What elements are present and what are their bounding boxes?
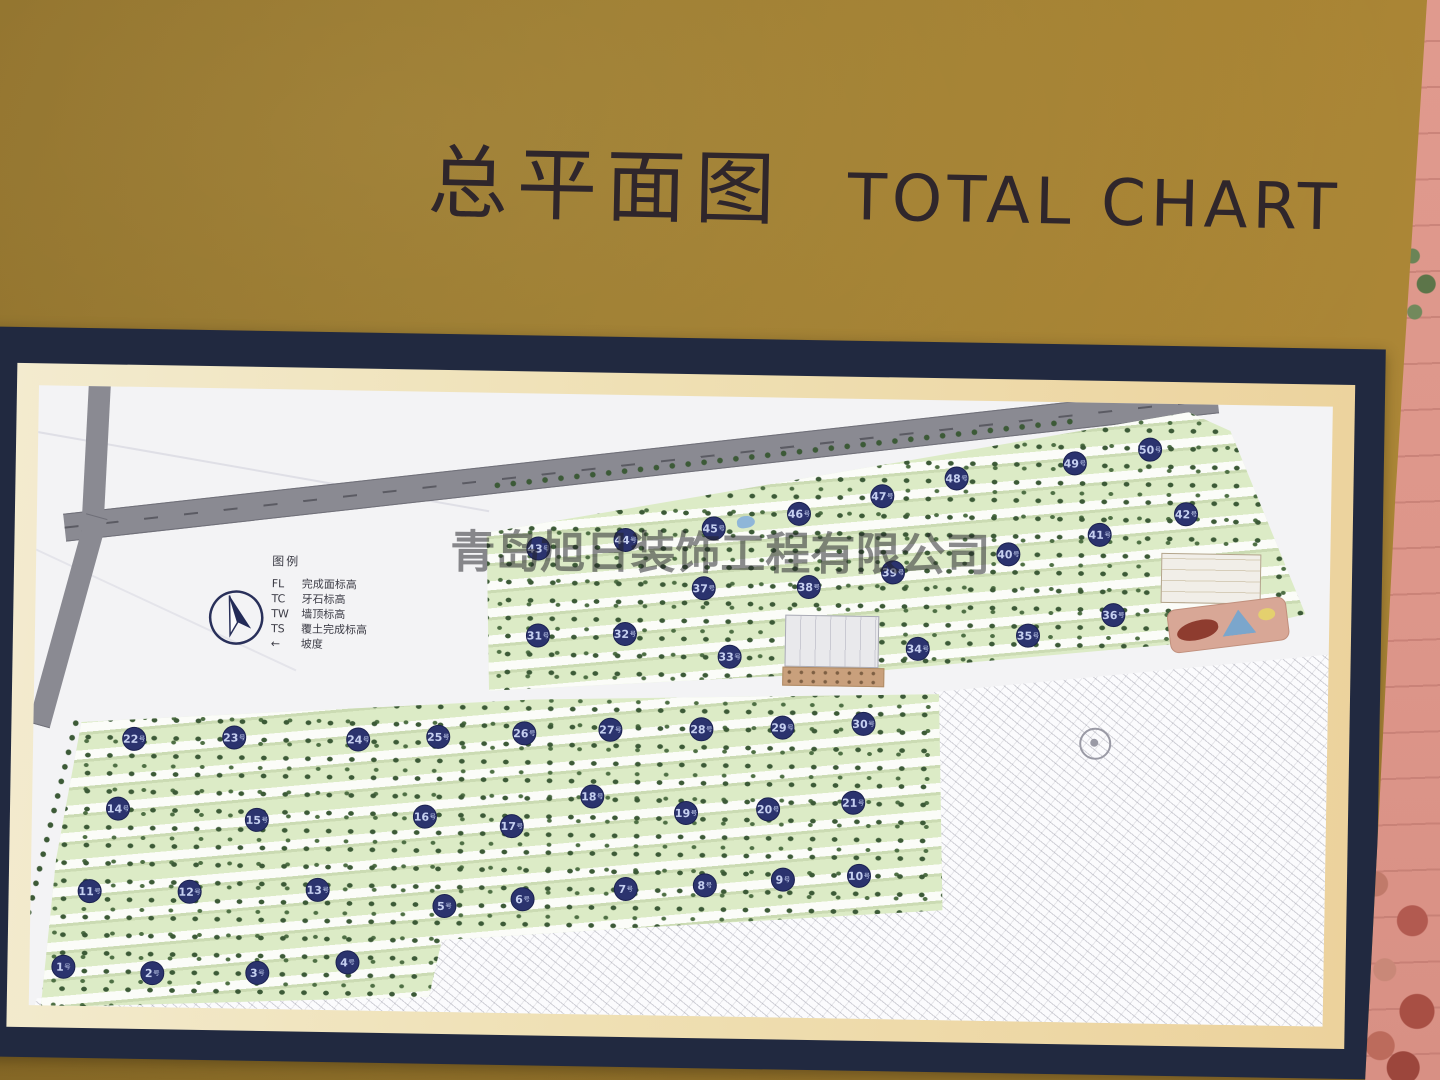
sign-title-english: TOTAL CHART xyxy=(847,161,1342,245)
photo-of-site-plan-sign: { "sign": { "title_zh": "总平面图", "title_e… xyxy=(0,0,1440,1080)
sign-title: 总平面图 TOTAL CHART xyxy=(427,118,1359,253)
legend-label: 覆土完成标高 xyxy=(301,622,367,638)
legend-label: 完成面标高 xyxy=(302,577,357,593)
map-panel-mat: 图例 FL 完成面标高 TC 牙石标高 TW 墙顶标高 TS xyxy=(6,363,1355,1049)
parking-strip xyxy=(782,667,884,688)
legend-label: 墙顶标高 xyxy=(301,607,345,623)
legend-item: FL 完成面标高 xyxy=(272,576,368,593)
main-road-vertical-lower xyxy=(29,513,108,728)
legend-item: TC 牙石标高 xyxy=(271,591,367,608)
playground-red-track xyxy=(1175,616,1220,644)
legend-item: TS 覆土完成标高 xyxy=(271,621,367,638)
slope-arrow-icon: ← xyxy=(271,636,301,651)
map-legend: 图例 FL 完成面标高 TC 牙石标高 TW 墙顶标高 TS xyxy=(271,552,369,653)
legend-abbr: TW xyxy=(271,606,301,621)
legend-item: TW 墙顶标高 xyxy=(271,606,367,623)
north-arrow-compass-icon xyxy=(197,579,274,656)
community-building xyxy=(784,615,879,669)
legend-label: 坡度 xyxy=(301,637,323,652)
site-plan-map: 图例 FL 完成面标高 TC 牙石标高 TW 墙顶标高 TS xyxy=(29,385,1333,1026)
kindergarten-building xyxy=(1161,553,1262,605)
legend-title: 图例 xyxy=(272,552,368,571)
company-watermark: 青岛旭日装饰工程有限公司 xyxy=(450,515,1050,584)
sign-board: 总平面图 TOTAL CHART xyxy=(0,0,1440,1080)
legend-abbr: FL xyxy=(272,576,302,591)
playground-sand-pit xyxy=(1258,607,1276,621)
sign-title-chinese: 总平面图 xyxy=(427,118,785,241)
legend-label: 牙石标高 xyxy=(301,592,345,608)
playground-blue-canopy xyxy=(1220,608,1257,637)
legend-abbr: TC xyxy=(271,591,301,606)
legend-item-slope: ← 坡度 xyxy=(271,636,367,653)
legend-abbr: TS xyxy=(271,621,301,636)
map-panel-frame: 图例 FL 完成面标高 TC 牙石标高 TW 墙顶标高 TS xyxy=(0,326,1386,1079)
